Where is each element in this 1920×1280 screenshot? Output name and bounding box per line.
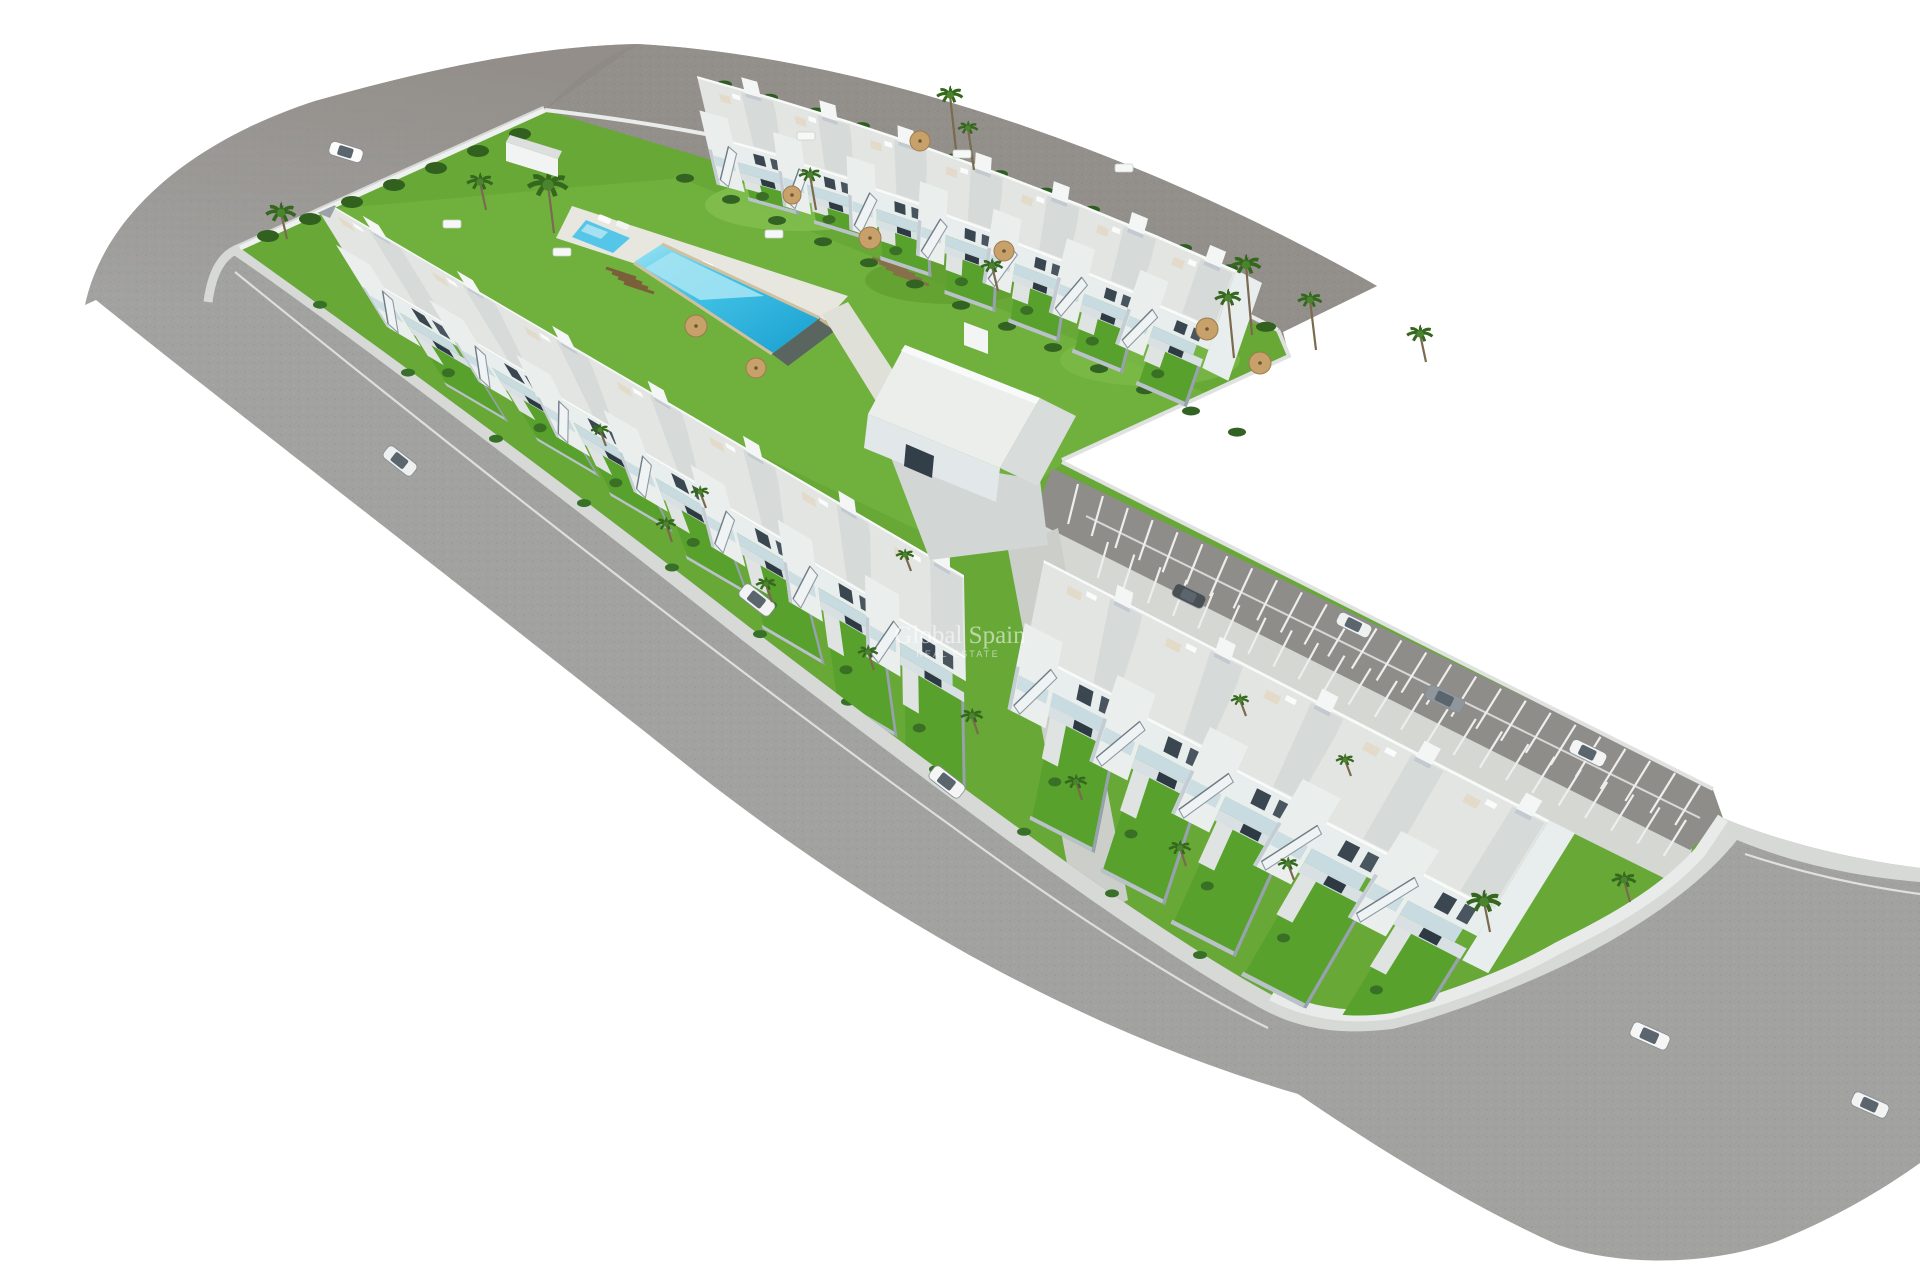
svg-text:Global Spain: Global Spain: [894, 622, 1026, 649]
svg-text:REAL ESTATE: REAL ESTATE: [916, 649, 1000, 659]
